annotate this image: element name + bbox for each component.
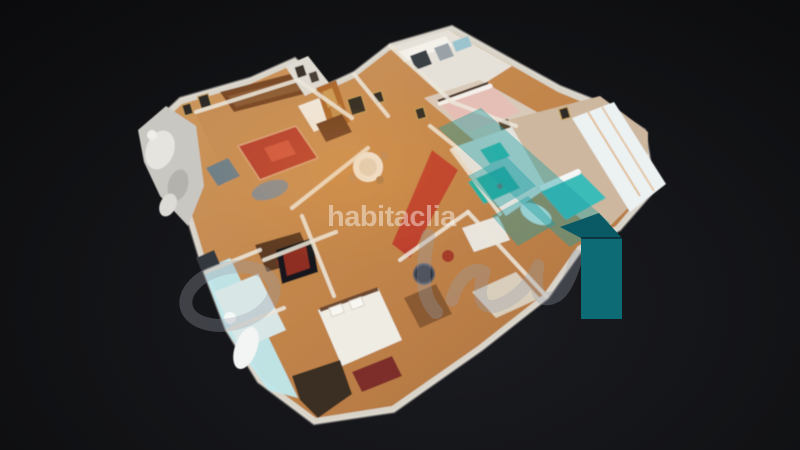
logo-house-stem [581,238,622,319]
dollhouse-3d-view[interactable] [0,0,800,450]
red-chair [442,250,454,262]
viewer-canvas[interactable]: habitaclia [0,0,800,450]
warm-glow [190,75,510,265]
